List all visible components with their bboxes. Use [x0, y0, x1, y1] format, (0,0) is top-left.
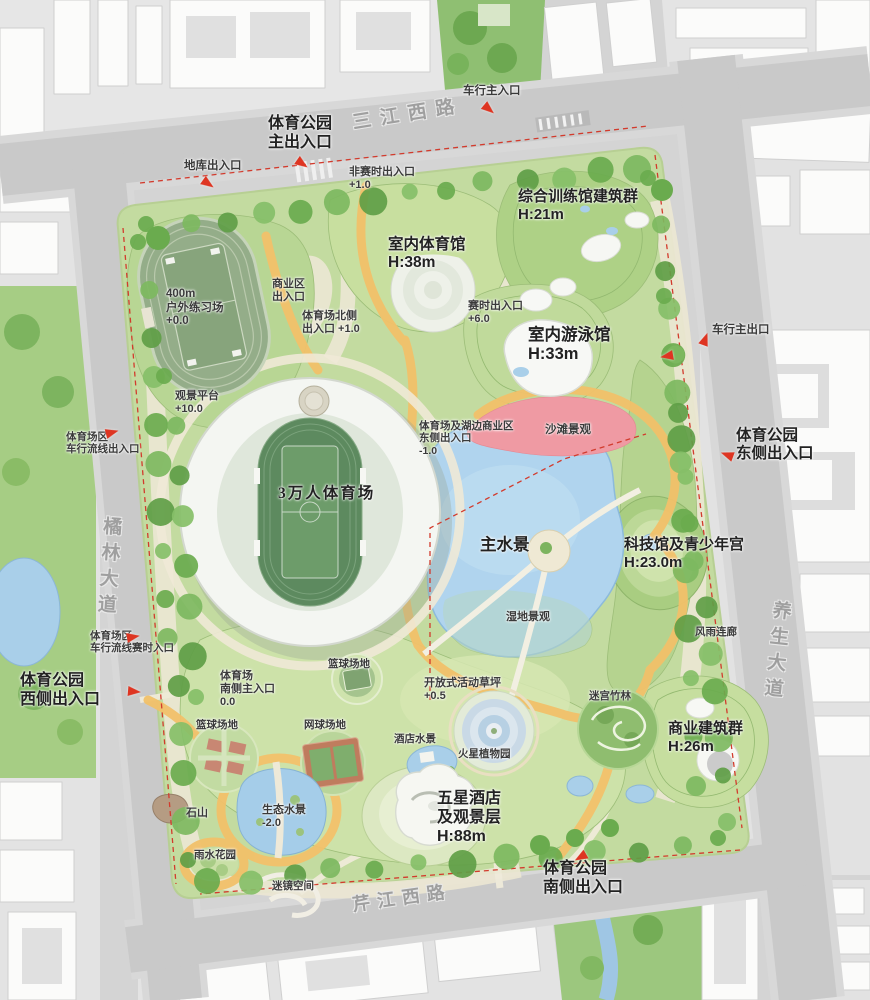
site-plan-map: 三江西路橘林大道养生大道芹江西路体育公园主出入口地库出入口车行主入口非赛时出入口… [0, 0, 870, 1000]
site-plan-svg [0, 0, 870, 1000]
